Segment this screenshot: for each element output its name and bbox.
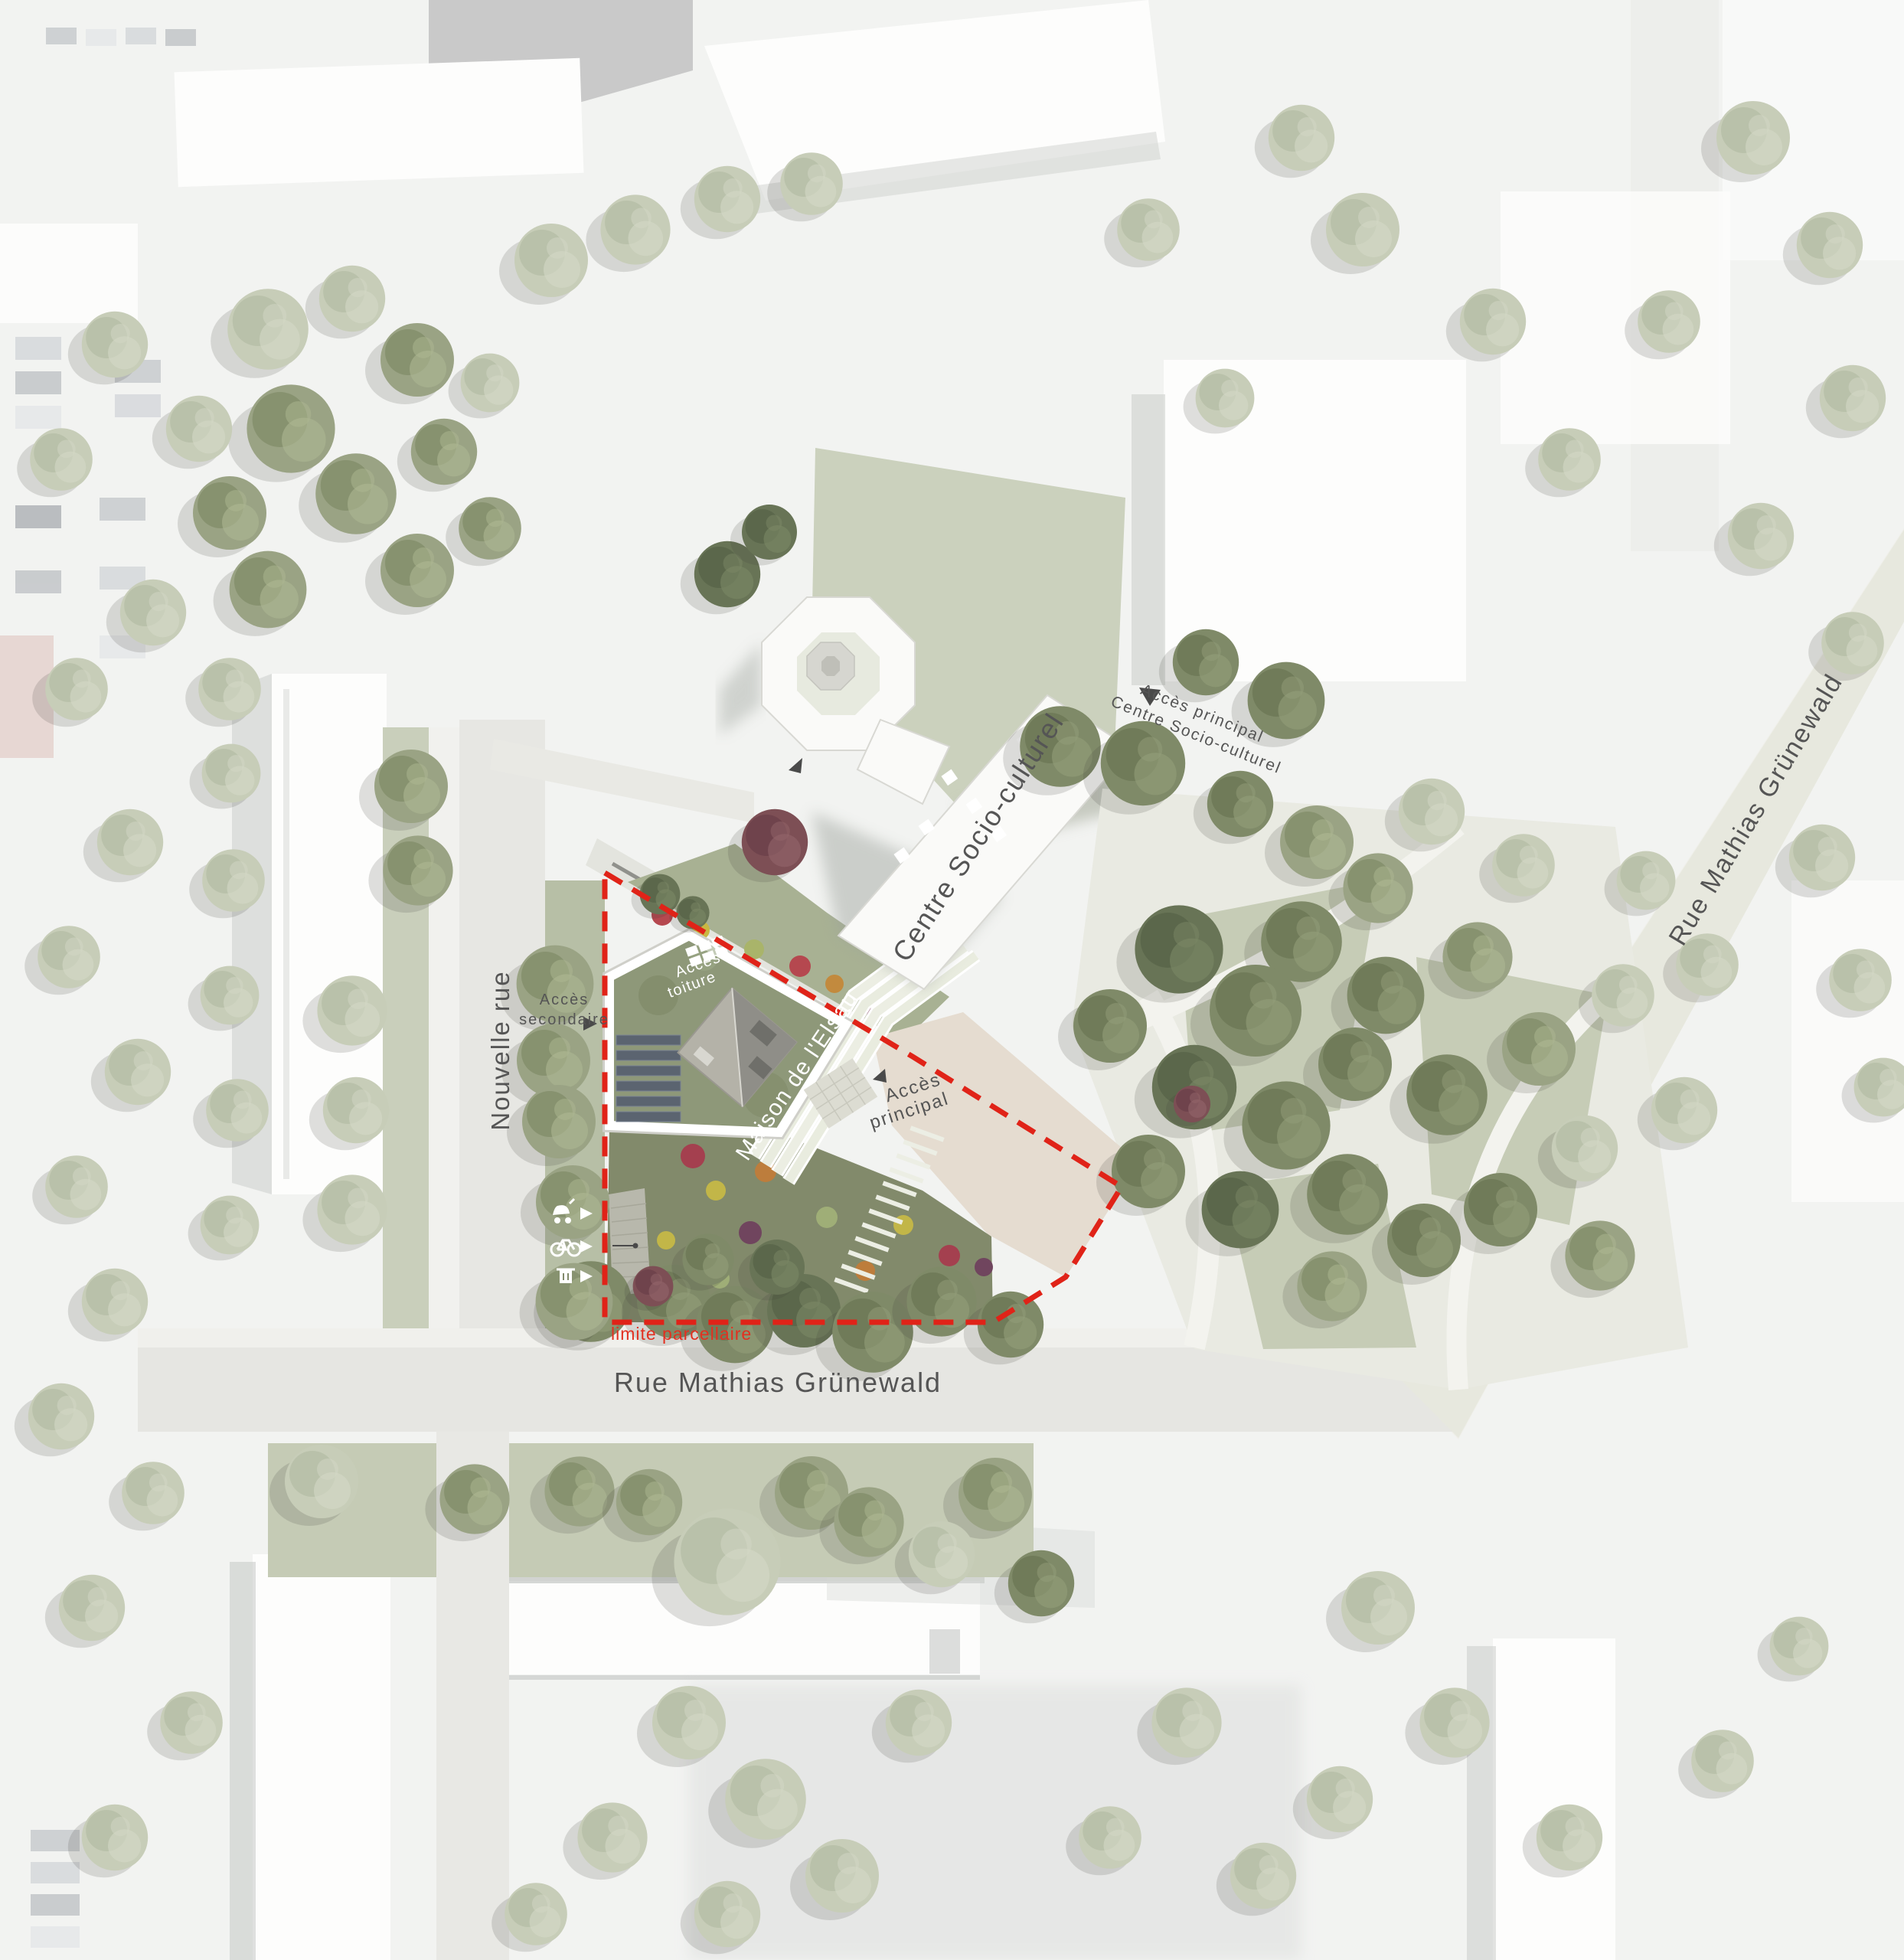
label-acces-secondaire-line1: Accès — [540, 991, 589, 1008]
site-plan: Centre Socio-culturel Accès principal Ce… — [0, 0, 1904, 1960]
site-plan-canvas: Centre Socio-culturel Accès principal Ce… — [0, 0, 1904, 1960]
label-limite-parcellaire: limite parcellaire — [611, 1324, 752, 1344]
label-rue-mathias-grunewald-horizontal: Rue Mathias Grünewald — [614, 1367, 942, 1398]
label-acces-secondaire-line2: secondaire — [519, 1011, 609, 1028]
sidewalk-nouvelle-rue — [429, 727, 461, 1347]
label-nouvelle-rue: Nouvelle rue — [486, 970, 514, 1130]
